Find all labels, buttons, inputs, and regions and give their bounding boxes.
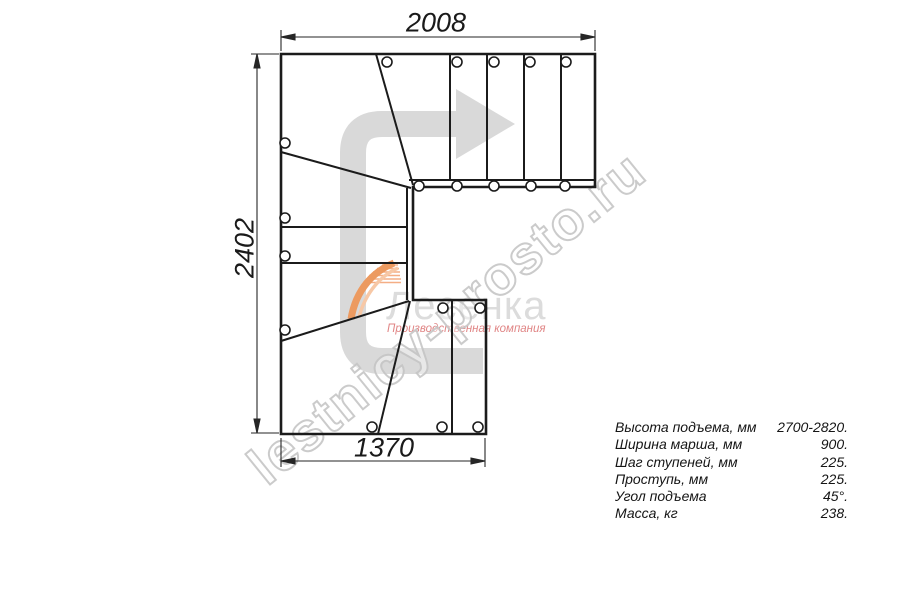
dimension-lines: [251, 30, 595, 467]
dimension-left-label: 2402: [230, 218, 261, 278]
spec-label: Угол подъема: [615, 488, 707, 505]
dimension-top-label: 2008: [406, 8, 466, 39]
spec-row: Ширина марша, мм 900.: [615, 436, 848, 453]
spec-row: Масса, кг 238.: [615, 505, 848, 522]
spec-value: 2700-2820.: [777, 419, 848, 436]
spec-row: Шаг ступеней, мм 225.: [615, 454, 848, 471]
spec-label: Ширина марша, мм: [615, 436, 742, 453]
drawing-canvas: Лесенка Производственная компания lestni…: [0, 0, 900, 600]
fastener-holes: [280, 57, 571, 432]
spec-label: Масса, кг: [615, 505, 678, 522]
spec-label: Шаг ступеней, мм: [615, 454, 738, 471]
spec-label: Высота подъема, мм: [615, 419, 757, 436]
dimension-bottom-label: 1370: [354, 433, 414, 464]
spec-value: 900.: [821, 436, 848, 453]
spec-label: Проступь, мм: [615, 471, 708, 488]
spec-row: Проступь, мм 225.: [615, 471, 848, 488]
spec-value: 225.: [821, 454, 848, 471]
spec-value: 238.: [821, 505, 848, 522]
stair-outline: [281, 54, 595, 434]
spec-table: Высота подъема, мм 2700-2820. Ширина мар…: [615, 419, 848, 523]
spec-row: Угол подъема 45°.: [615, 488, 848, 505]
spec-value: 45°.: [823, 488, 848, 505]
spec-row: Высота подъема, мм 2700-2820.: [615, 419, 848, 436]
spec-value: 225.: [821, 471, 848, 488]
